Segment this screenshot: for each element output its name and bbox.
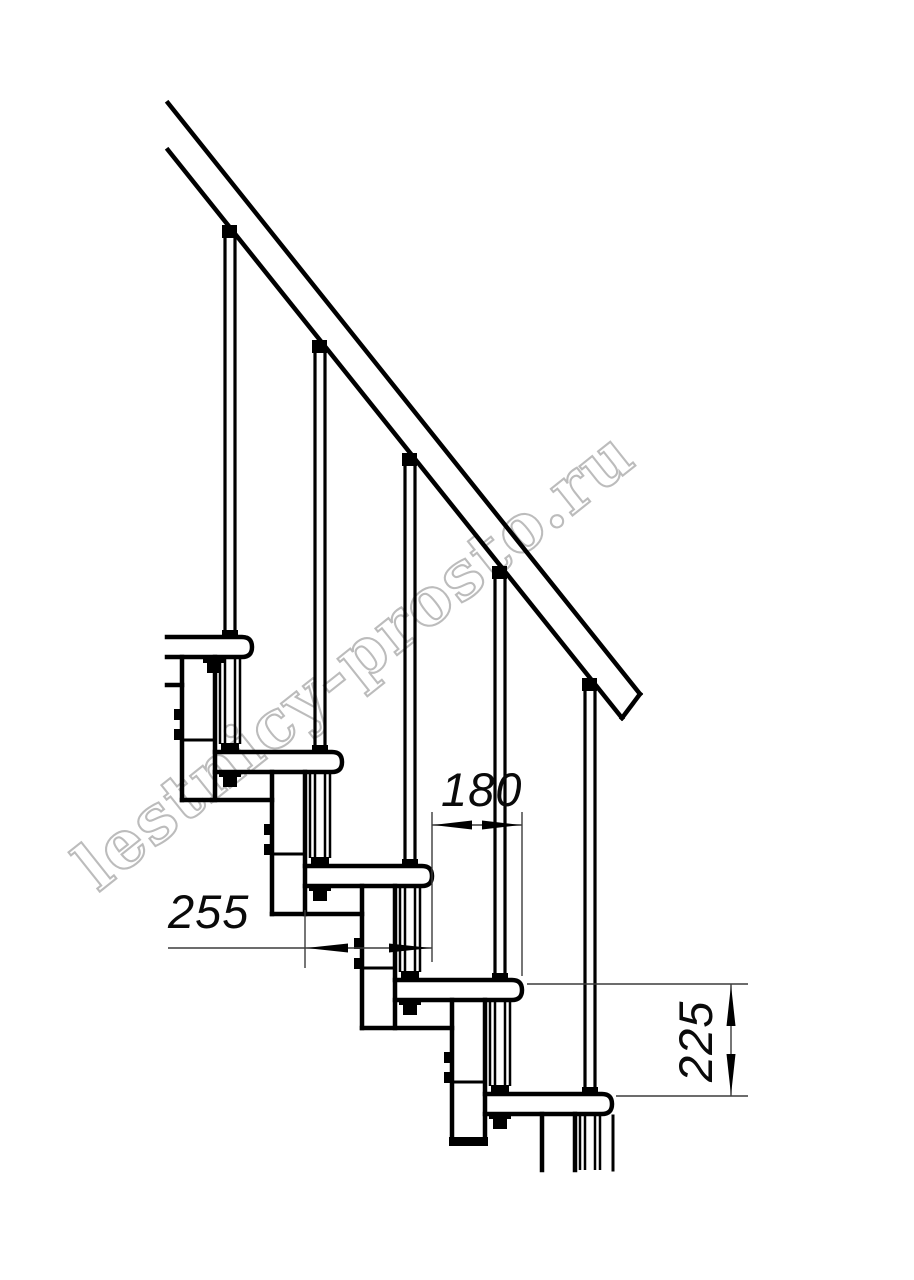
- baluster-rail-mount: [492, 566, 507, 579]
- baluster-foot: [222, 630, 238, 637]
- dim-arrowhead-left: [433, 821, 472, 830]
- baluster-rail-mount: [222, 225, 237, 238]
- strut-4: [490, 1000, 510, 1094]
- dim-arrowhead-down: [727, 1054, 736, 1095]
- tread-5: [485, 1094, 612, 1114]
- strut-foot: [401, 971, 419, 980]
- strut-foot: [311, 857, 329, 866]
- baluster-rail-mount: [312, 340, 327, 353]
- strut-2: [310, 772, 330, 866]
- strut-foot: [491, 1085, 509, 1094]
- dimension-tread-depth: 255: [167, 812, 432, 968]
- bolt: [264, 844, 273, 855]
- technical-drawing: lestnicy-prosto.ru: [0, 0, 914, 1280]
- module-bottom-flange: [449, 1137, 488, 1146]
- bolt: [174, 729, 183, 740]
- dim-arrowhead-right: [389, 944, 431, 953]
- tread-4: [395, 980, 522, 1000]
- bolt: [444, 1072, 453, 1083]
- tread-3: [305, 866, 432, 886]
- dimension-step-rise: 225: [527, 984, 748, 1096]
- baluster-foot: [582, 1087, 598, 1094]
- dim-arrowhead-right: [482, 821, 521, 830]
- bolt: [444, 1052, 453, 1063]
- baluster-rail-mount: [402, 453, 417, 466]
- dimension-value-225: 225: [669, 1001, 722, 1083]
- dimension-value-255: 255: [167, 885, 249, 938]
- support-column-5: [542, 1114, 613, 1170]
- support-column-4: [444, 1000, 488, 1146]
- baluster-foot: [312, 745, 328, 752]
- staircase-drawing-canvas: lestnicy-prosto.ru: [0, 0, 914, 1280]
- bolt: [354, 958, 363, 969]
- dimension-step-run: 180: [432, 763, 522, 976]
- strut-5: [580, 1114, 600, 1170]
- dimension-value-180: 180: [441, 763, 522, 816]
- dim-arrowhead-left: [306, 944, 348, 953]
- dim-arrowhead-up: [727, 985, 736, 1026]
- bolt: [174, 709, 183, 720]
- baluster-1: [222, 225, 238, 637]
- handrail-end-cap: [622, 694, 640, 718]
- baluster-foot: [402, 859, 418, 866]
- strut-3: [400, 886, 420, 980]
- baluster-5: [582, 678, 598, 1094]
- bolt: [264, 824, 273, 835]
- baluster-foot: [492, 973, 508, 980]
- baluster-rail-mount: [582, 678, 597, 691]
- tread-1: [167, 637, 252, 657]
- strut-foot: [221, 743, 239, 752]
- watermark-text: lestnicy-prosto.ru: [59, 414, 648, 905]
